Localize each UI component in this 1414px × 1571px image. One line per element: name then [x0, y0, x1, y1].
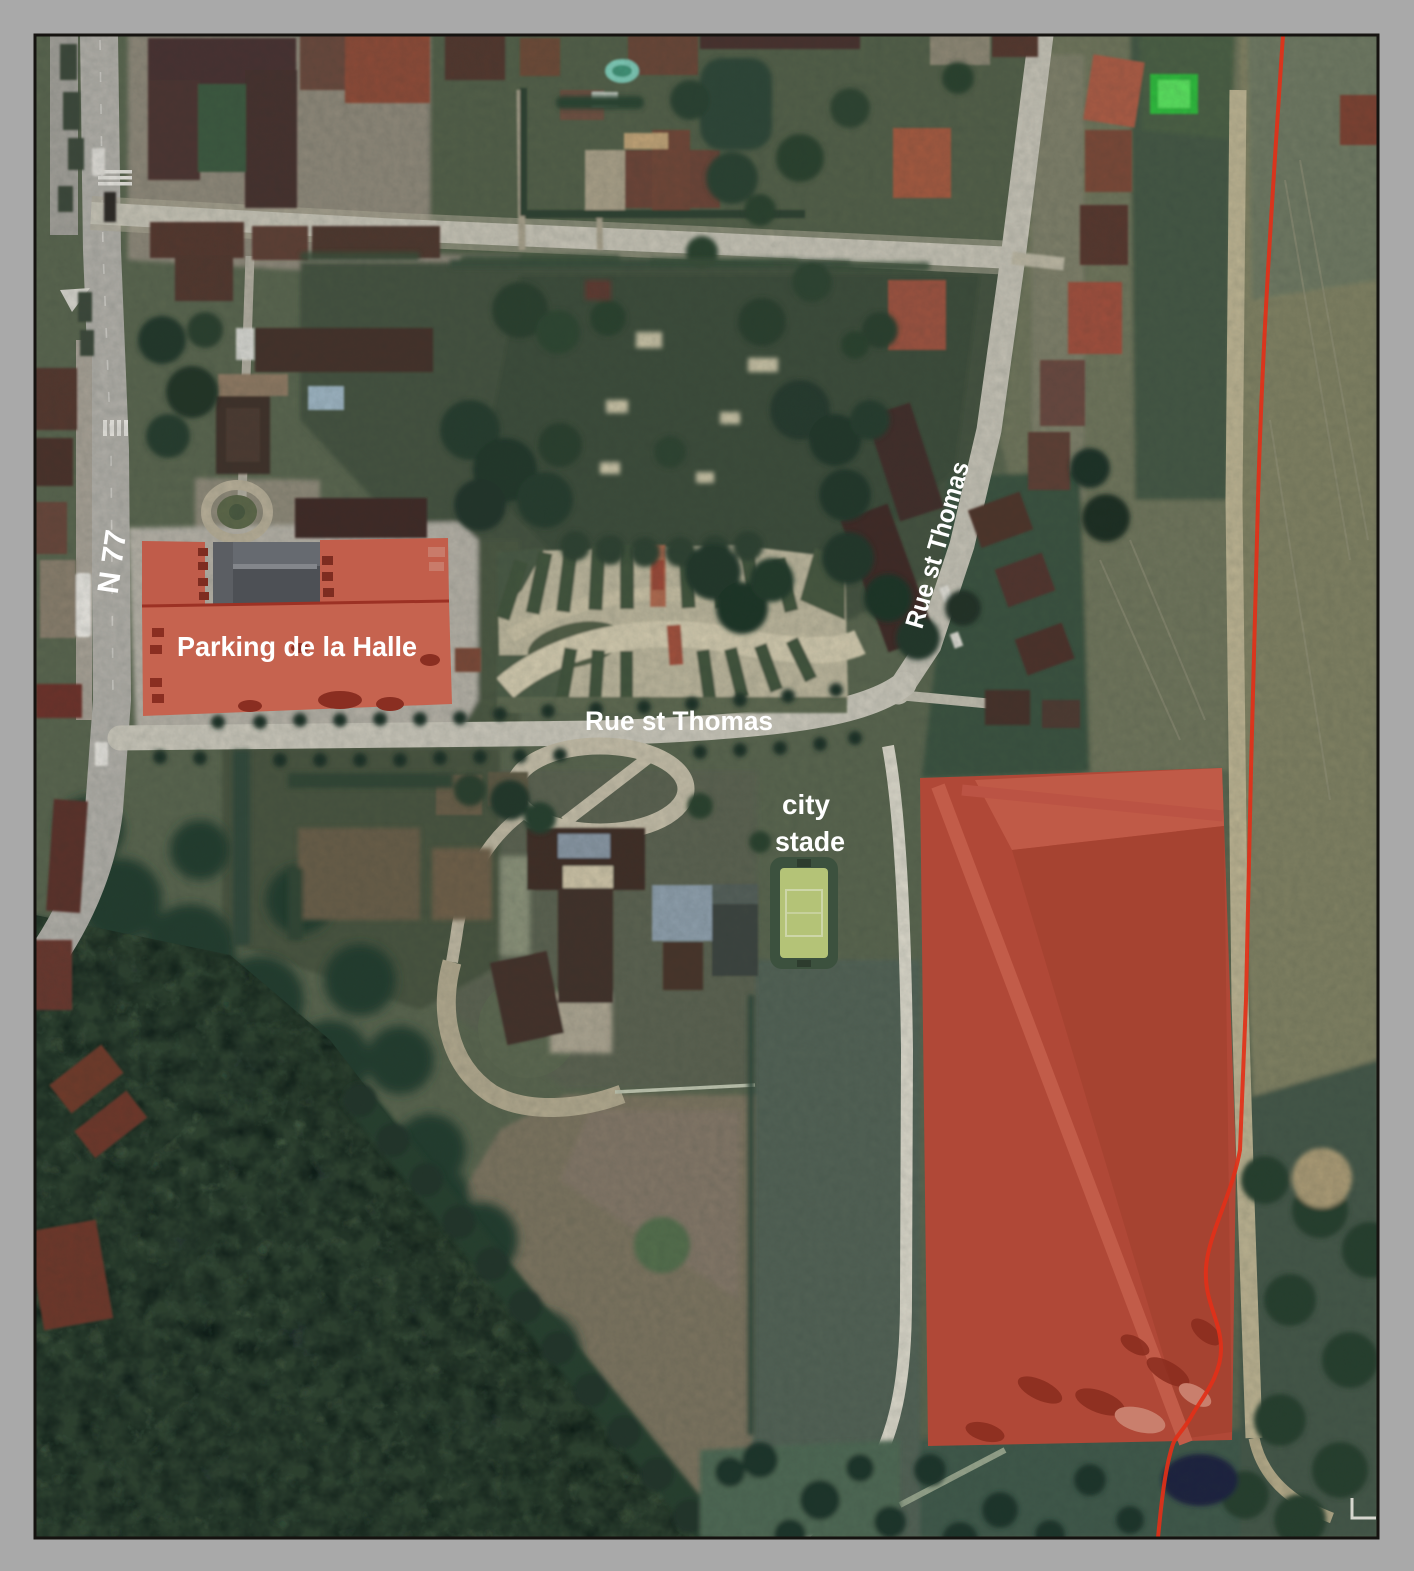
svg-text:Parking de la Halle: Parking de la Halle: [177, 631, 417, 662]
svg-text:city: city: [782, 789, 830, 820]
svg-text:stade: stade: [775, 826, 845, 857]
svg-text:Rue st Thomas: Rue st Thomas: [585, 706, 773, 736]
